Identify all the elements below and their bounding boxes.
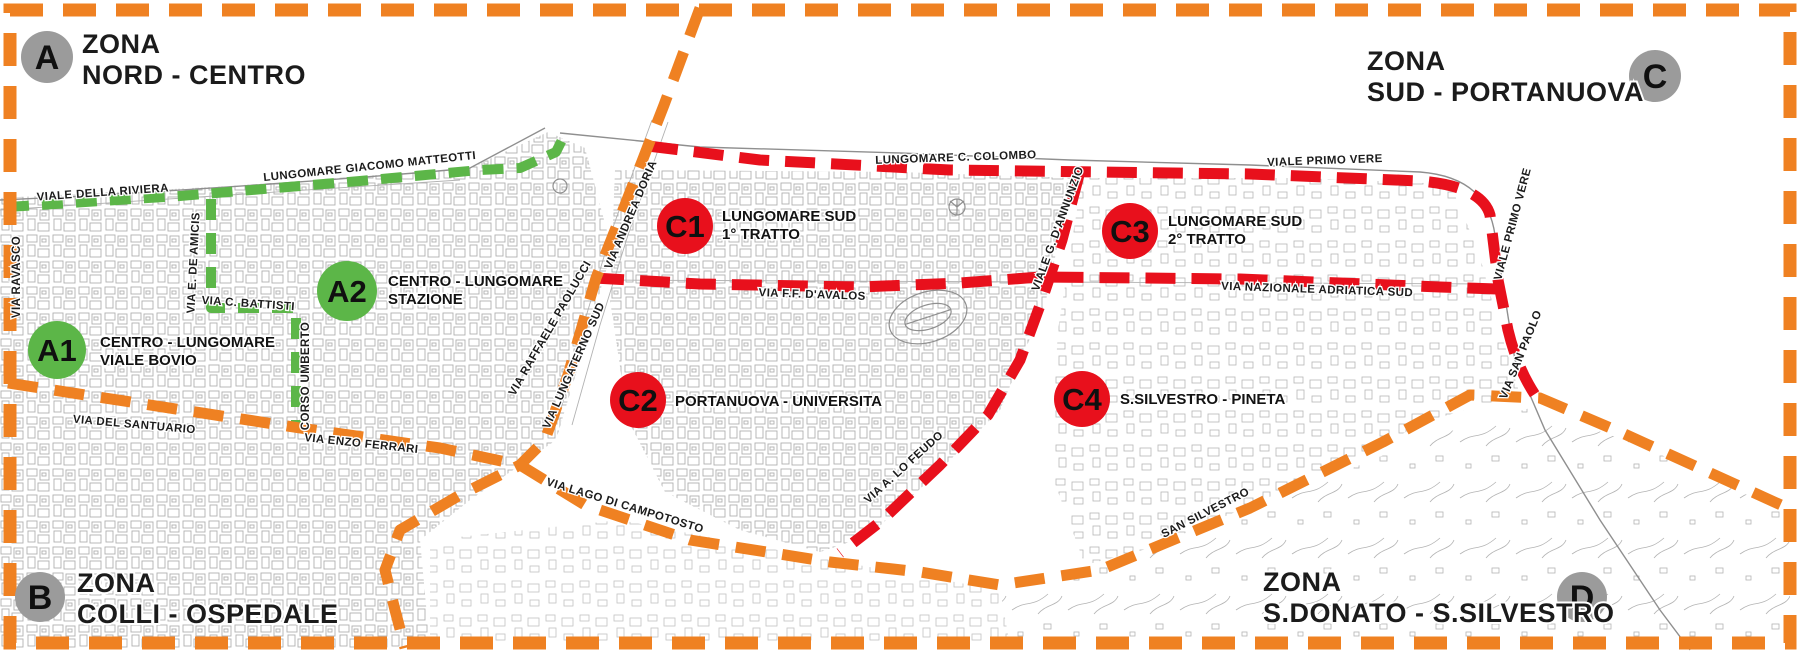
subzone-c3-name-line2: 2° TRATTO (1168, 231, 1246, 248)
zone-d-title-line1: ZONA (1263, 567, 1342, 597)
street-label-via-ravasco: VIA RAVASCO (11, 236, 23, 318)
subzone-a2-name-line2: STAZIONE (388, 291, 463, 308)
zone-map-page: VIALE DELLA RIVIERA LUNGOMARE GIACOMO MA… (0, 0, 1800, 653)
zone-b-letter: B (28, 579, 53, 617)
subzone-c2-label: C2 (618, 383, 658, 418)
zone-b-title-line2: COLLI - OSPEDALE (77, 599, 339, 629)
subzone-c3-label: C3 (1110, 214, 1150, 249)
zone-a-title-line1: ZONA (82, 29, 161, 59)
city-zones-map: VIALE DELLA RIVIERA LUNGOMARE GIACOMO MA… (0, 0, 1800, 653)
zone-c-title-line2: SUD - PORTANUOVA (1367, 77, 1644, 107)
subzone-c4-name-line1: S.SILVESTRO - PINETA (1120, 391, 1285, 408)
subzone-c1-label: C1 (665, 209, 705, 244)
street-label-viale-primo-vere-top: VIALE PRIMO VERE (1267, 153, 1383, 169)
subzone-c1-name-line1: LUNGOMARE SUD (722, 208, 856, 225)
zone-c-title-line1: ZONA (1367, 46, 1446, 76)
street-label-corso-umberto: CORSO UMBERTO (300, 322, 312, 431)
zone-c-letter: C (1643, 58, 1668, 96)
subzone-c2-name-line1: PORTANUOVA - UNIVERSITA (675, 393, 882, 410)
zone-a-letter: A (35, 39, 60, 77)
urban-fabric-south (430, 520, 1010, 645)
subzone-a1-name-line1: CENTRO - LUNGOMARE (100, 334, 275, 351)
subzone-a2-name-line1: CENTRO - LUNGOMARE (388, 273, 563, 290)
zone-c-header: C ZONA SUD - PORTANUOVA (1367, 46, 1681, 107)
subzone-a1-name-line2: VIALE BOVIO (100, 352, 197, 369)
subzone-c4-label: C4 (1062, 382, 1102, 417)
zone-b-title-line1: ZONA (77, 568, 156, 598)
subzone-c1-name-line2: 1° TRATTO (722, 226, 800, 243)
subzone-a1-label: A1 (37, 333, 77, 368)
subzone-c3-name-line1: LUNGOMARE SUD (1168, 213, 1302, 230)
zone-d-title-line2: S.DONATO - S.SILVESTRO (1263, 598, 1615, 628)
subzone-a2-label: A2 (327, 274, 367, 309)
street-label-lungomare-colombo: LUNGOMARE C. COLOMBO (875, 149, 1037, 167)
zone-a-title-line2: NORD - CENTRO (82, 60, 306, 90)
street-label-viale-primo-vere-right: VIALE PRIMO VERE (1492, 167, 1534, 282)
zone-a-header: A ZONA NORD - CENTRO (21, 29, 306, 90)
